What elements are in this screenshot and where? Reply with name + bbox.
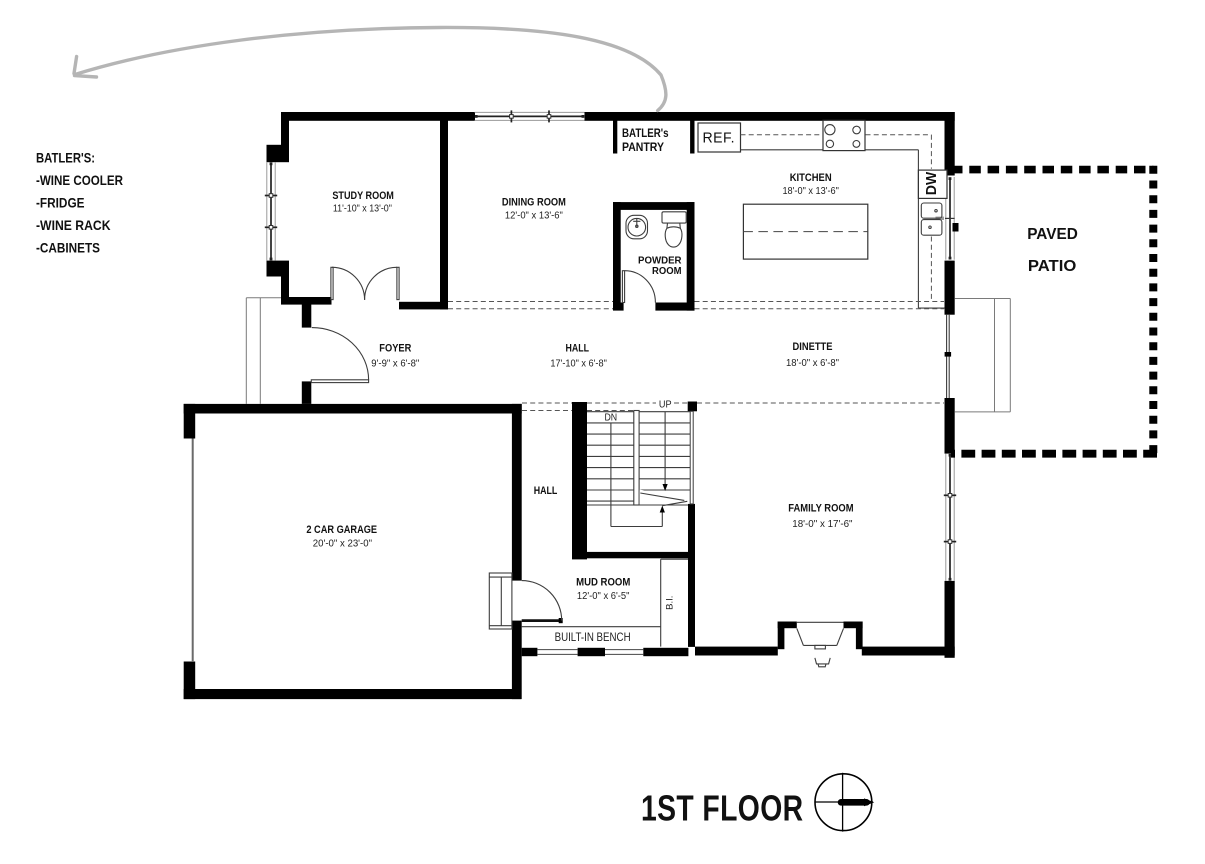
svg-text:PANTRY: PANTRY xyxy=(622,140,664,154)
svg-text:DINETTE: DINETTE xyxy=(793,341,833,353)
svg-text:ROOM: ROOM xyxy=(652,265,682,277)
svg-text:18'-0" x 13'-6": 18'-0" x 13'-6" xyxy=(782,186,839,197)
svg-text:BATLER's: BATLER's xyxy=(622,126,669,140)
svg-text:11'-10" x 13'-0": 11'-10" x 13'-0" xyxy=(333,204,392,215)
svg-text:-WINE RACK: -WINE RACK xyxy=(36,217,111,233)
svg-text:-FRIDGE: -FRIDGE xyxy=(36,195,85,211)
svg-text:17'-10" x 6'-8": 17'-10" x 6'-8" xyxy=(550,358,607,369)
svg-text:18'-0" x 6'-8": 18'-0" x 6'-8" xyxy=(786,358,839,369)
svg-text:12'-0" x 13'-6": 12'-0" x 13'-6" xyxy=(505,211,563,222)
svg-text:DN: DN xyxy=(604,411,617,423)
svg-text:PATIO: PATIO xyxy=(1028,258,1076,275)
svg-text:KITCHEN: KITCHEN xyxy=(790,172,832,184)
svg-text:BATLER'S:: BATLER'S: xyxy=(36,150,95,166)
svg-text:12'-0" x 6'-5": 12'-0" x 6'-5" xyxy=(577,591,630,602)
svg-text:MUD ROOM: MUD ROOM xyxy=(576,577,630,589)
svg-text:2 CAR GARAGE: 2 CAR GARAGE xyxy=(306,524,377,536)
svg-text:BUILT-IN BENCH: BUILT-IN BENCH xyxy=(555,630,631,644)
svg-text:HALL: HALL xyxy=(566,343,590,355)
svg-text:DINING ROOM: DINING ROOM xyxy=(502,197,566,209)
svg-text:18'-0" x 17'-6": 18'-0" x 17'-6" xyxy=(792,519,853,530)
svg-text:UP: UP xyxy=(659,399,672,411)
svg-text:-CABINETS: -CABINETS xyxy=(36,239,100,255)
svg-text:-WINE COOLER: -WINE COOLER xyxy=(36,172,123,188)
svg-text:STUDY ROOM: STUDY ROOM xyxy=(332,190,394,202)
svg-text:DW: DW xyxy=(923,171,940,195)
svg-text:PAVED: PAVED xyxy=(1027,226,1078,243)
svg-text:20'-0" x 23'-0": 20'-0" x 23'-0" xyxy=(313,539,373,550)
svg-text:1ST FLOOR: 1ST FLOOR xyxy=(641,788,804,829)
svg-text:FAMILY ROOM: FAMILY ROOM xyxy=(788,503,853,515)
svg-text:HALL: HALL xyxy=(534,485,558,497)
svg-text:REF.: REF. xyxy=(703,130,736,146)
svg-text:B.I.: B.I. xyxy=(665,596,676,610)
svg-text:9'-9" x 6'-8": 9'-9" x 6'-8" xyxy=(371,358,419,369)
svg-text:FOYER: FOYER xyxy=(379,343,411,355)
